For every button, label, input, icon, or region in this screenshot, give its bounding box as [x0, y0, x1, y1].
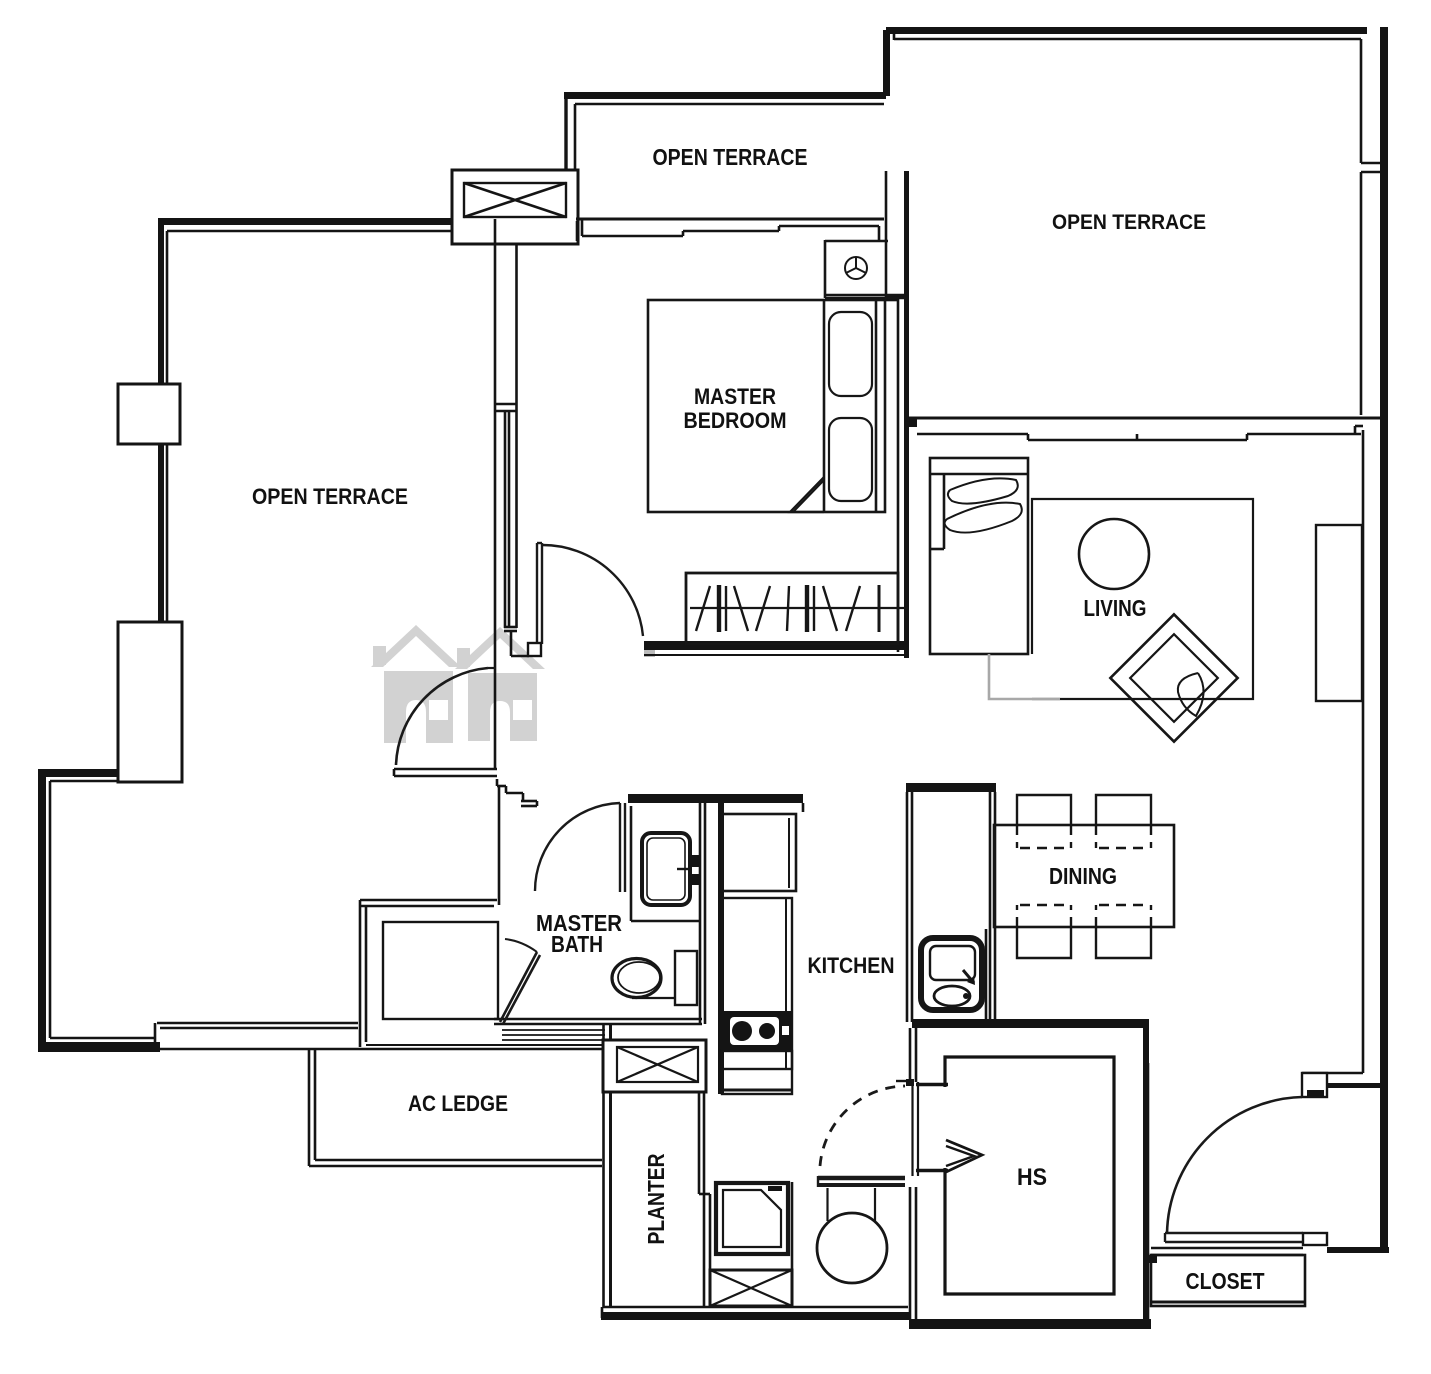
svg-text:BEDROOM: BEDROOM: [684, 408, 787, 433]
svg-text:PLANTER: PLANTER: [643, 1153, 669, 1244]
svg-text:OPEN TERRACE: OPEN TERRACE: [1052, 211, 1206, 234]
svg-text:LIVING: LIVING: [1084, 595, 1147, 621]
svg-text:BATH: BATH: [551, 931, 603, 957]
svg-text:OPEN TERRACE: OPEN TERRACE: [252, 484, 408, 509]
svg-text:KITCHEN: KITCHEN: [808, 953, 895, 978]
svg-text:MASTER: MASTER: [694, 384, 776, 409]
svg-text:OPEN TERRACE: OPEN TERRACE: [653, 144, 808, 170]
svg-text:CLOSET: CLOSET: [1186, 1268, 1265, 1294]
svg-text:HS: HS: [1017, 1164, 1047, 1191]
svg-text:DINING: DINING: [1049, 863, 1117, 889]
svg-text:AC LEDGE: AC LEDGE: [408, 1091, 508, 1116]
